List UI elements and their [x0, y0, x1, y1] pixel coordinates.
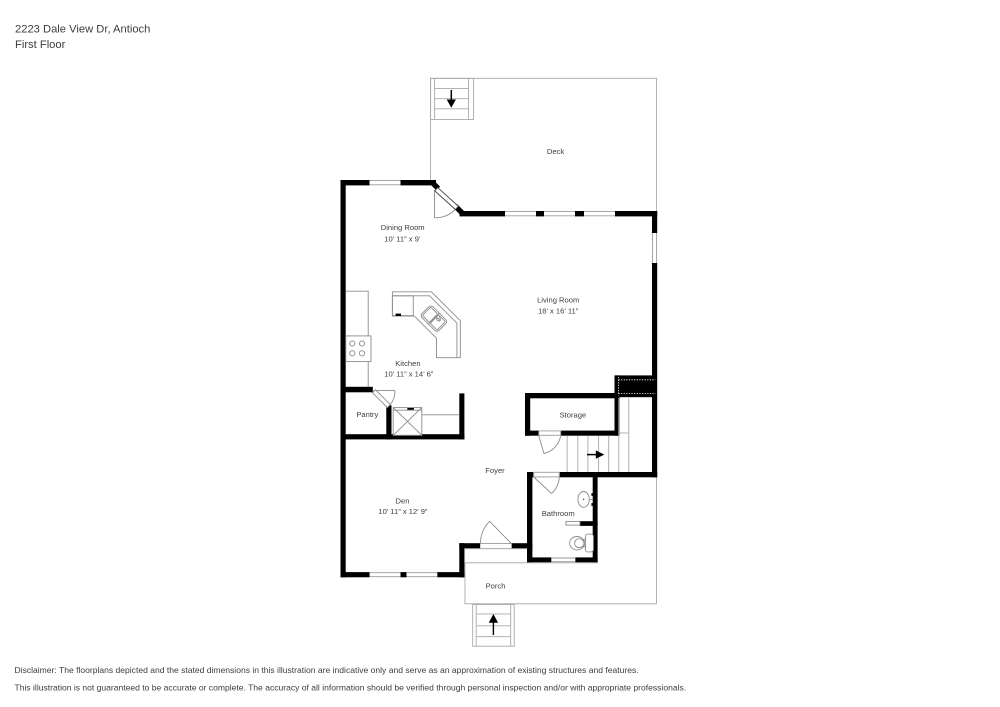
svg-text:10’ 11” x 12’ 9”: 10’ 11” x 12’ 9” [378, 507, 428, 516]
svg-text:10’ 11” x 14’ 6”: 10’ 11” x 14’ 6” [384, 369, 434, 378]
svg-text:10’ 11” x 9’: 10’ 11” x 9’ [384, 234, 421, 243]
svg-text:Foyer: Foyer [485, 466, 505, 475]
svg-text:Storage: Storage [560, 410, 587, 419]
svg-text:Bathroom: Bathroom [542, 509, 575, 518]
svg-text:Dining Room: Dining Room [381, 223, 425, 232]
svg-text:Kitchen: Kitchen [395, 359, 420, 368]
svg-text:Living Room: Living Room [537, 296, 579, 305]
svg-text:18’ x 16’ 11”: 18’ x 16’ 11” [538, 307, 579, 316]
svg-text:Deck: Deck [547, 147, 565, 156]
svg-text:2223 Dale View Dr, Antioch: 2223 Dale View Dr, Antioch [15, 23, 150, 35]
svg-text:This illustration is not guara: This illustration is not guaranteed to b… [15, 683, 687, 693]
svg-text:Disclaimer: The floorplans dep: Disclaimer: The floorplans depicted and … [15, 665, 639, 675]
svg-text:Den: Den [396, 497, 410, 506]
svg-text:Porch: Porch [486, 582, 506, 591]
svg-text:Pantry: Pantry [356, 410, 378, 419]
svg-text:First Floor: First Floor [15, 39, 66, 51]
